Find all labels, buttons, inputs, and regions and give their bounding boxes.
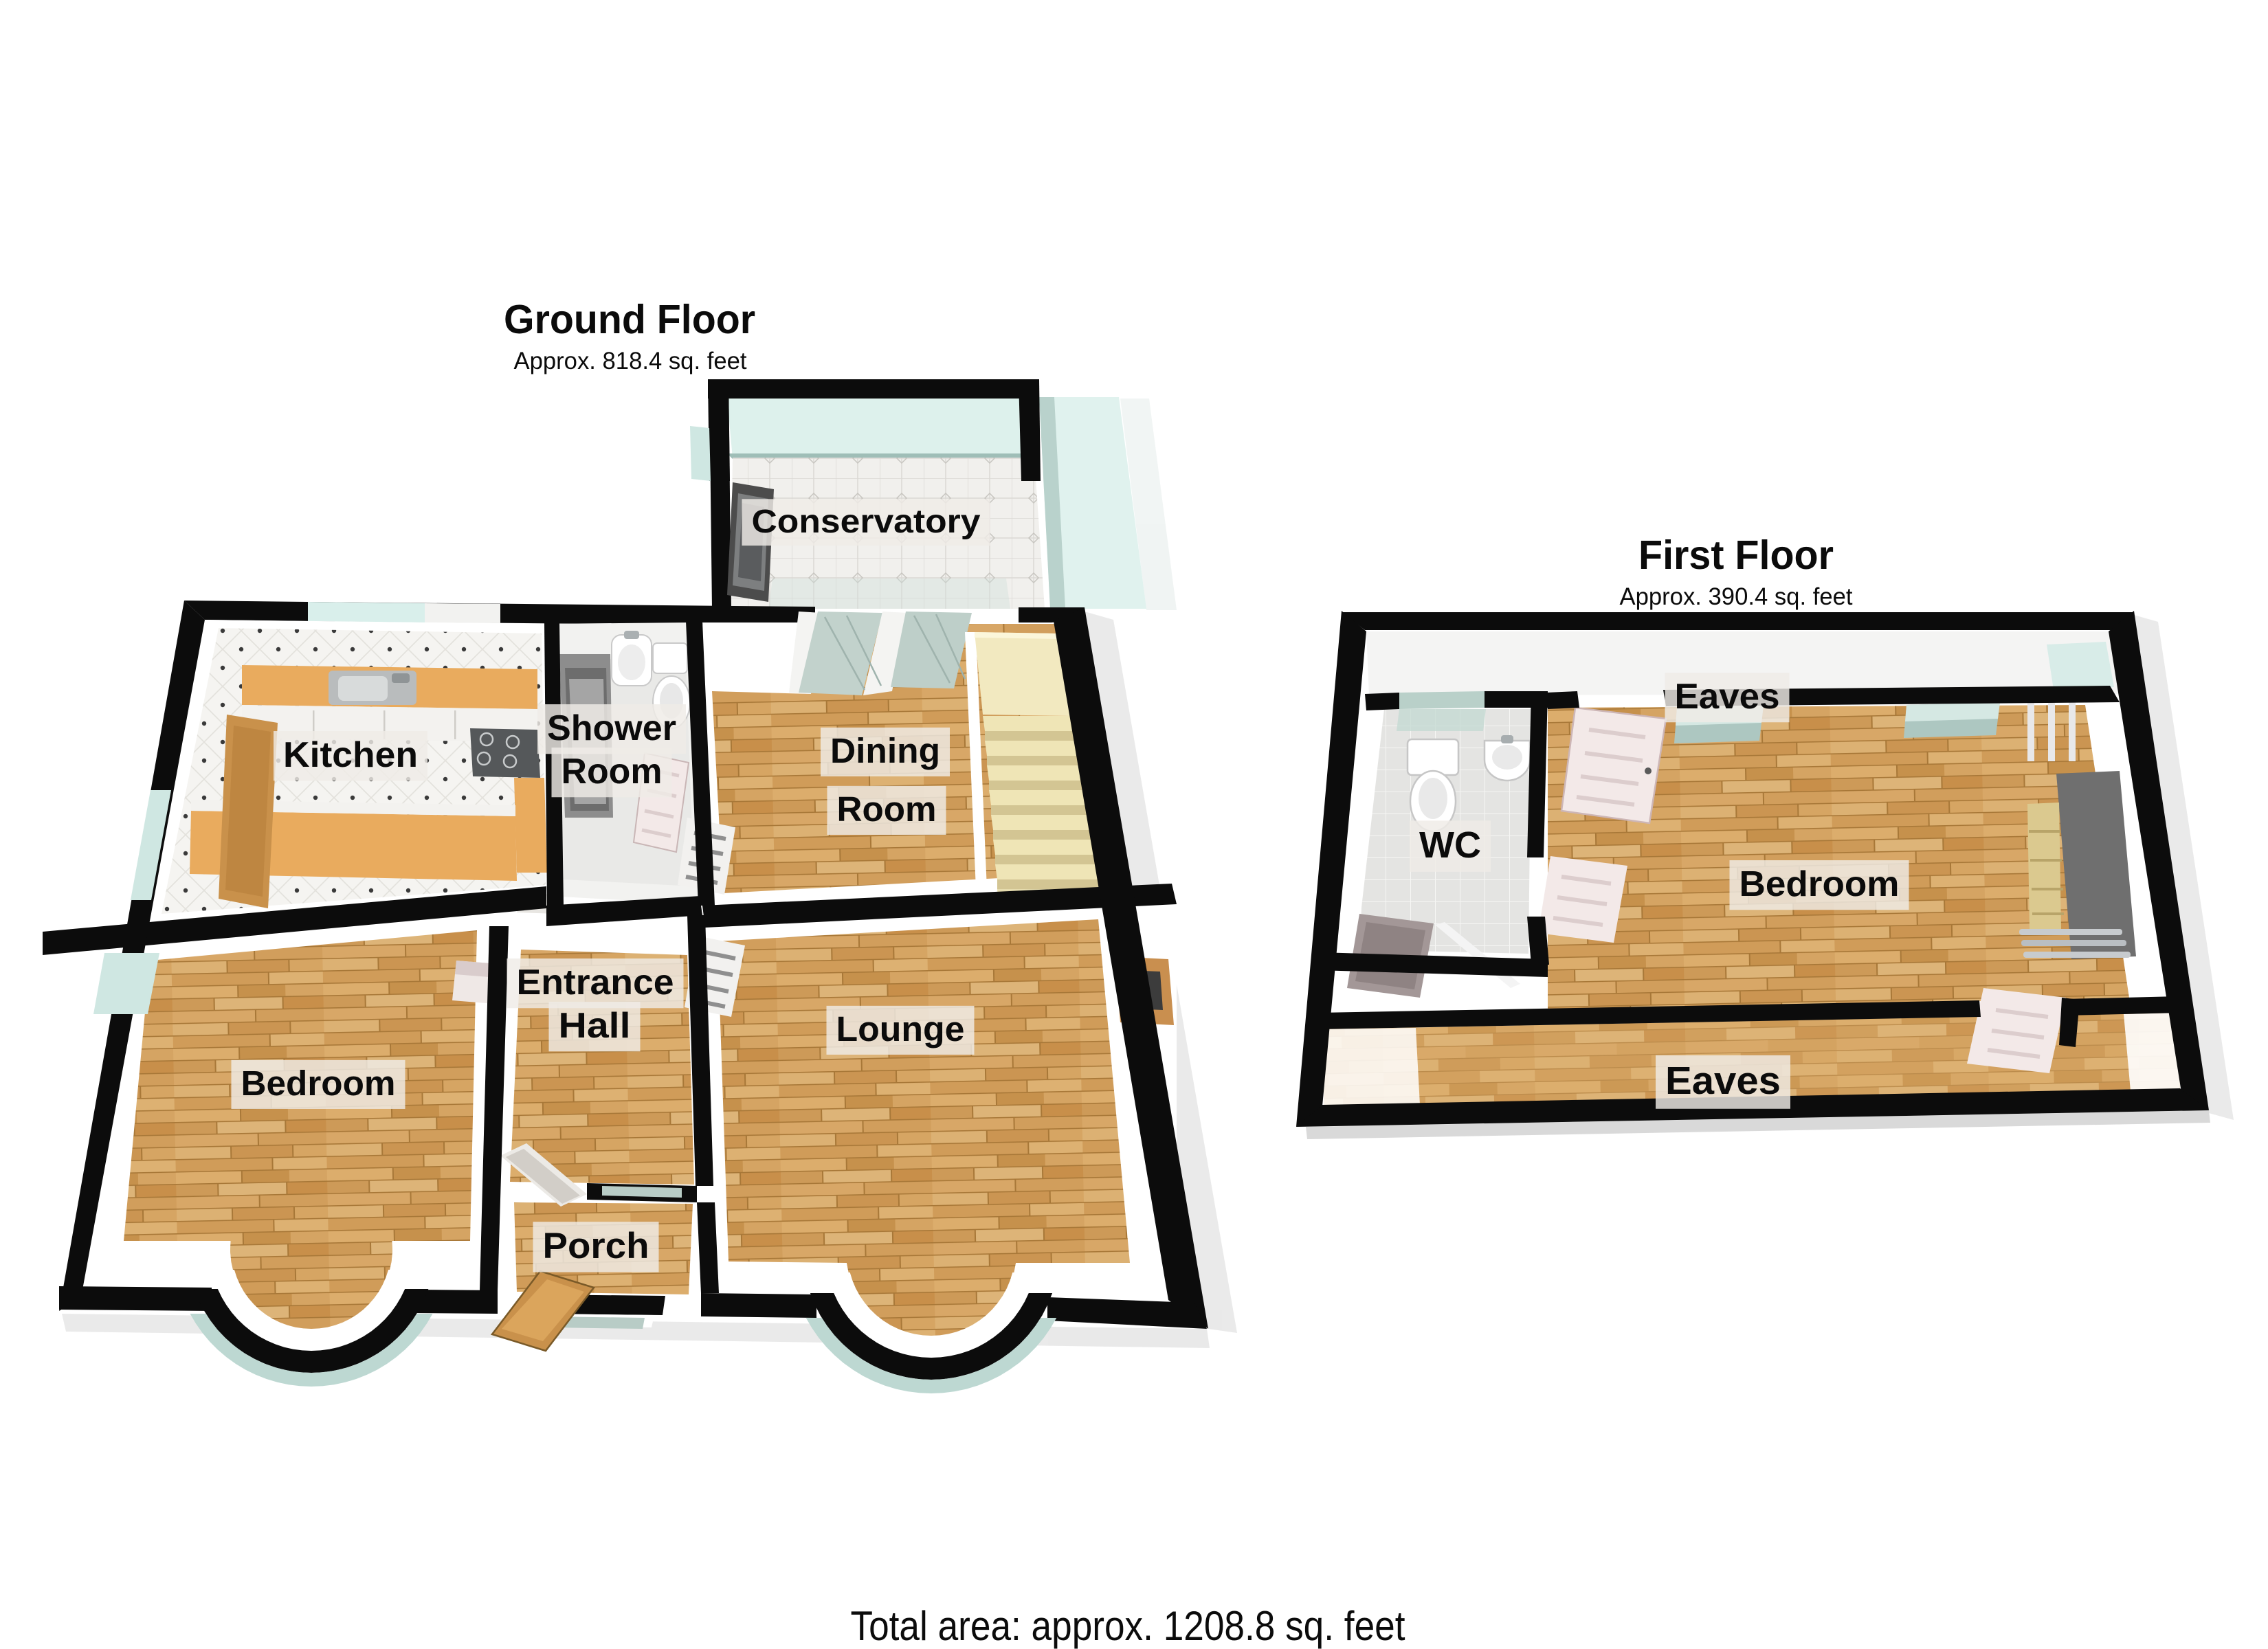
svg-text:Conservatory: Conservatory [752,504,981,540]
svg-text:Bedroom: Bedroom [1739,864,1900,904]
svg-text:Room: Room [562,752,663,792]
svg-text:WC: WC [1419,824,1481,866]
svg-text:Total area: approx. 1208.8 sq.: Total area: approx. 1208.8 sq. feet [851,1603,1405,1649]
svg-text:Approx. 390.4 sq. feet: Approx. 390.4 sq. feet [1620,583,1853,610]
svg-text:Eaves: Eaves [1665,1059,1781,1103]
svg-text:Ground Floor: Ground Floor [504,297,755,342]
svg-text:Room: Room [837,789,937,829]
svg-text:Dining: Dining [830,731,940,770]
svg-text:Shower: Shower [547,708,676,748]
svg-text:Bedroom: Bedroom [241,1064,396,1103]
svg-text:Approx. 818.4 sq. feet: Approx. 818.4 sq. feet [514,348,747,374]
svg-text:Lounge: Lounge [836,1009,965,1048]
svg-text:Entrance: Entrance [517,963,674,1002]
svg-text:Porch: Porch [543,1226,649,1266]
svg-text:Eaves: Eaves [1675,677,1780,717]
svg-text:Hall: Hall [559,1006,631,1046]
svg-text:Kitchen: Kitchen [283,735,418,775]
svg-text:First Floor: First Floor [1638,532,1834,578]
